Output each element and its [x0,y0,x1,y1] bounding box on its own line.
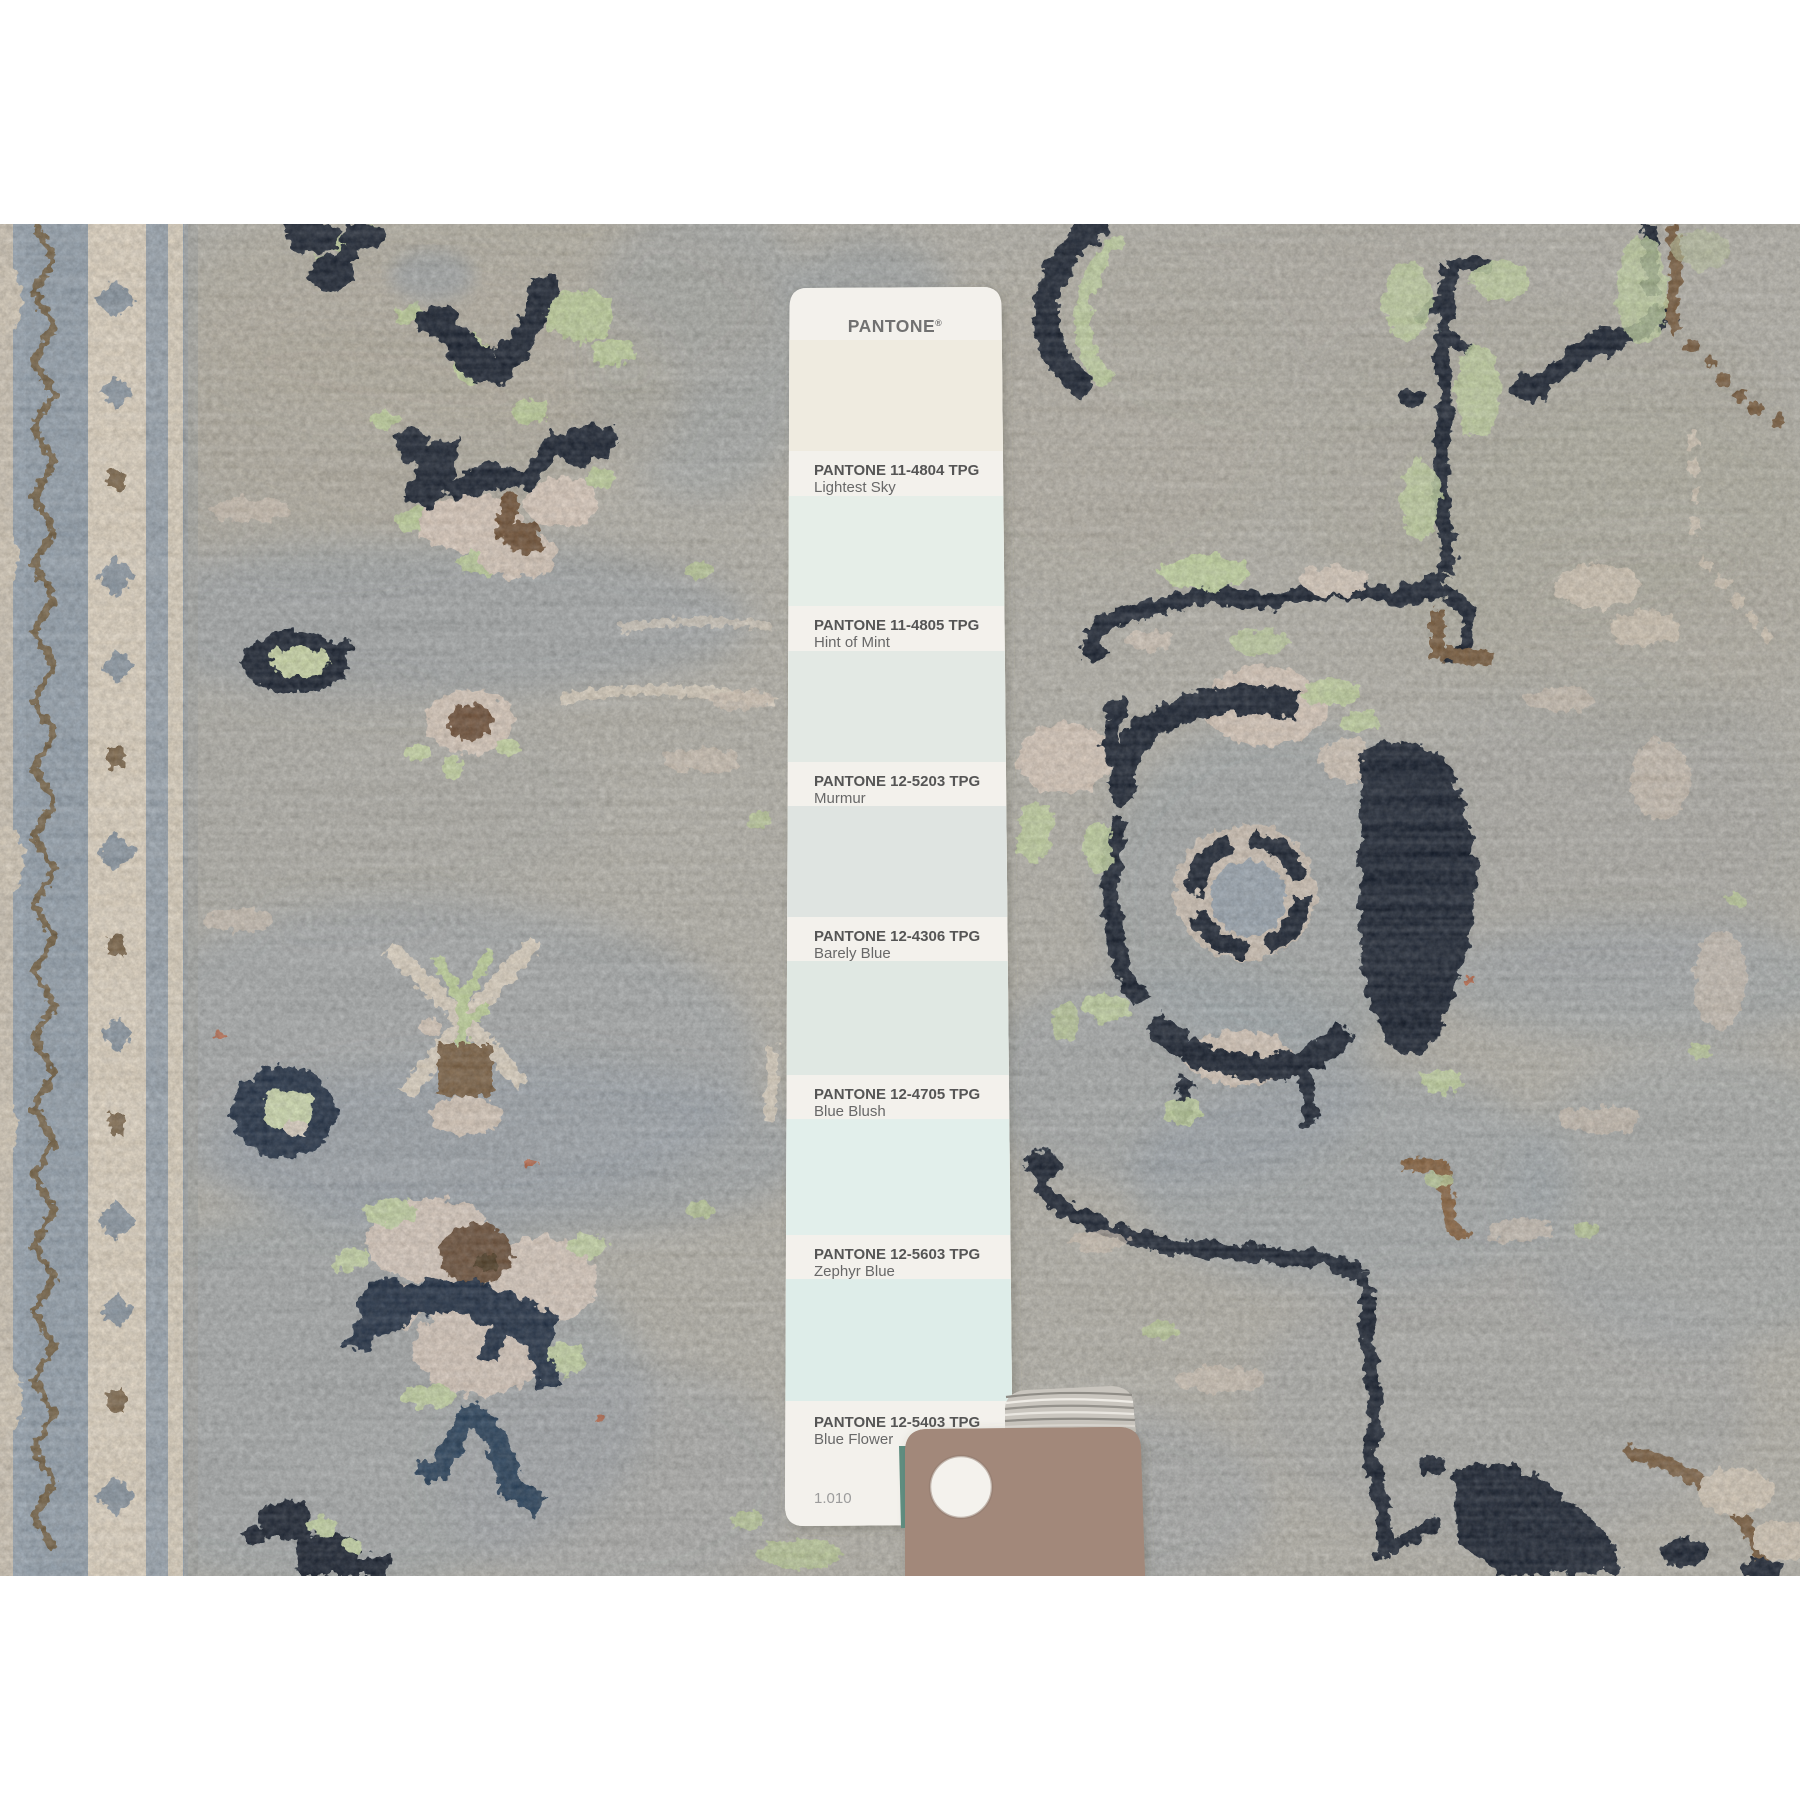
svg-text:Blue Blush: Blue Blush [814,1103,886,1120]
svg-text:Hint of Mint: Hint of Mint [814,634,891,651]
svg-text:PANTONE 12-4705 TPG: PANTONE 12-4705 TPG [814,1086,980,1103]
svg-text:1.010: 1.010 [814,1490,852,1507]
svg-text:Lightest Sky: Lightest Sky [814,479,896,496]
svg-text:Barely Blue: Barely Blue [814,945,891,962]
svg-text:Blue Flower: Blue Flower [814,1431,893,1448]
svg-text:Murmur: Murmur [814,790,866,807]
svg-text:PANTONE 11-4805 TPG: PANTONE 11-4805 TPG [814,617,979,634]
svg-text:PANTONE®: PANTONE® [848,316,943,336]
svg-text:Zephyr Blue: Zephyr Blue [814,1263,895,1280]
svg-text:PANTONE 12-5203 TPG: PANTONE 12-5203 TPG [814,773,980,790]
svg-text:PANTONE 12-4306 TPG: PANTONE 12-4306 TPG [814,928,980,945]
svg-text:PANTONE 12-5403 TPG: PANTONE 12-5403 TPG [814,1414,980,1431]
svg-text:PANTONE 12-5603 TPG: PANTONE 12-5603 TPG [814,1246,980,1263]
svg-text:PANTONE 11-4804 TPG: PANTONE 11-4804 TPG [814,462,979,479]
